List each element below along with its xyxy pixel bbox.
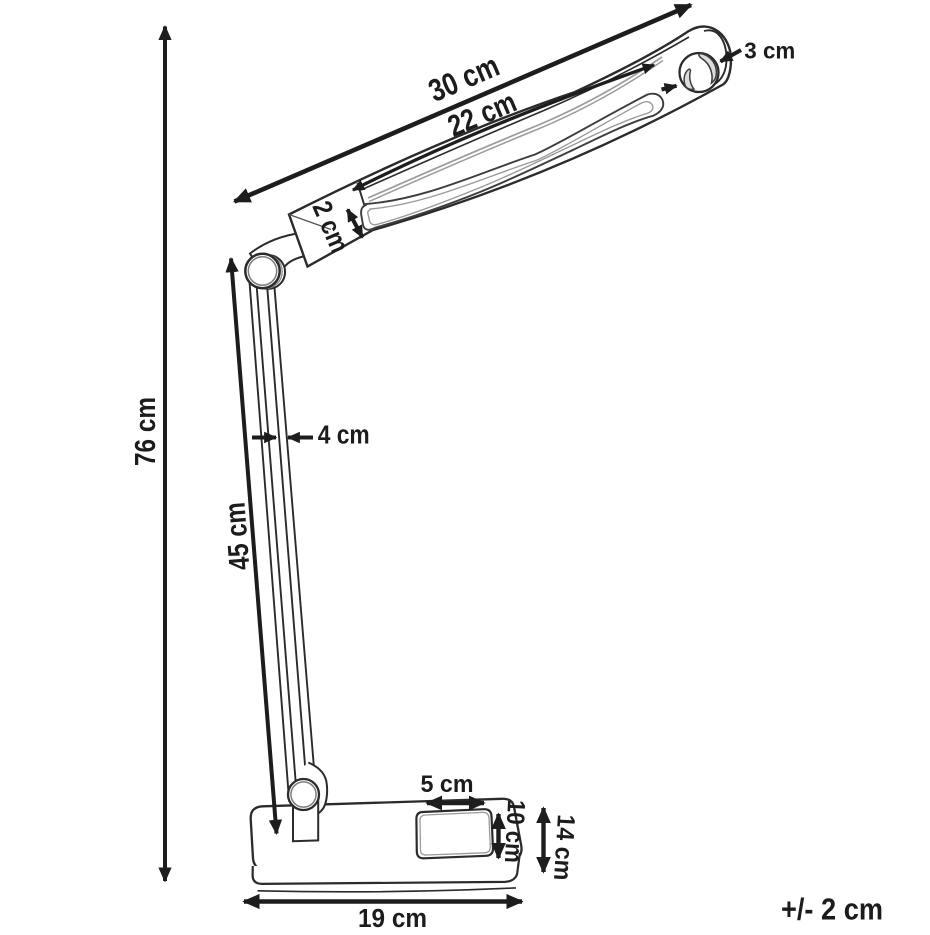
svg-text:45 cm: 45 cm xyxy=(220,501,257,571)
svg-text:14 cm: 14 cm xyxy=(548,814,580,882)
svg-text:+/- 2 cm: +/- 2 cm xyxy=(781,893,883,927)
svg-text:3 cm: 3 cm xyxy=(744,38,795,64)
svg-text:19 cm: 19 cm xyxy=(358,905,427,930)
svg-text:10 cm: 10 cm xyxy=(499,799,530,863)
svg-text:5 cm: 5 cm xyxy=(421,771,474,798)
svg-text:76 cm: 76 cm xyxy=(130,397,162,466)
svg-text:4 cm: 4 cm xyxy=(318,422,370,450)
